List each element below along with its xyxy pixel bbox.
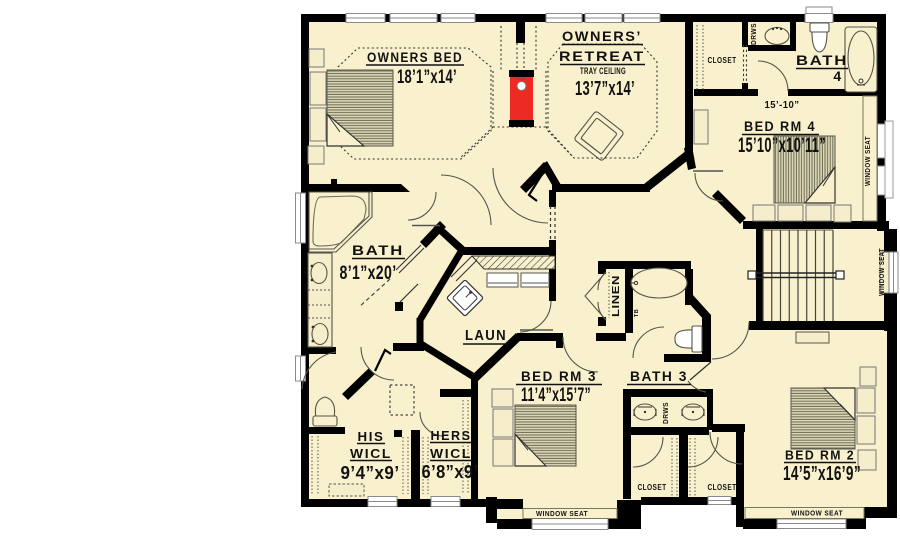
svg-text:WINDOW SEAT: WINDOW SEAT (865, 136, 872, 186)
svg-text:BATH: BATH (796, 52, 848, 68)
svg-text:DRWS: DRWS (751, 23, 758, 45)
svg-text:6’8”x9’: 6’8”x9’ (422, 461, 479, 482)
svg-text:14’5”x16’9”: 14’5”x16’9” (783, 463, 861, 485)
svg-text:HERS: HERS (431, 429, 472, 443)
svg-text:LINEN: LINEN (610, 275, 622, 317)
svg-text:15’10”x10’11”: 15’10”x10’11” (738, 134, 826, 157)
svg-text:9’4”x9’: 9’4”x9’ (341, 462, 400, 483)
svg-text:13’7”x14’: 13’7”x14’ (575, 78, 635, 100)
svg-text:CLOSET: CLOSET (708, 483, 737, 492)
svg-text:11’4”x15’7”: 11’4”x15’7” (521, 385, 591, 406)
svg-text:WINDOW SEAT: WINDOW SEAT (791, 509, 843, 518)
svg-text:OWNERS’: OWNERS’ (562, 28, 642, 44)
svg-text:BATH: BATH (352, 242, 404, 258)
svg-text:8’1”x20’: 8’1”x20’ (340, 262, 397, 284)
svg-text:BED RM 4: BED RM 4 (744, 119, 816, 134)
svg-text:18’1”x14’: 18’1”x14’ (397, 66, 457, 88)
svg-text:HIS: HIS (358, 430, 385, 444)
svg-text:BATH 3: BATH 3 (630, 369, 688, 384)
svg-text:LAUN: LAUN (465, 328, 507, 344)
svg-text:OWNERS BED: OWNERS BED (367, 50, 463, 65)
svg-text:WINDOW SEAT: WINDOW SEAT (536, 509, 588, 518)
svg-text:BED RM 3: BED RM 3 (521, 369, 597, 384)
svg-text:WICL: WICL (350, 447, 392, 461)
svg-text:DRWS: DRWS (663, 402, 670, 424)
svg-text:CLOSET: CLOSET (638, 483, 667, 492)
svg-text:TRAY CEILING: TRAY CEILING (580, 66, 626, 76)
svg-text:CLOSET: CLOSET (708, 56, 737, 65)
svg-text:15’-10”: 15’-10” (765, 100, 800, 111)
svg-text:WICL: WICL (430, 447, 472, 461)
svg-text:WINDOW SEAT: WINDOW SEAT (879, 248, 886, 296)
svg-text:4: 4 (833, 68, 842, 84)
svg-text:TB: TB (634, 309, 640, 317)
svg-text:RETREAT: RETREAT (559, 48, 645, 64)
svg-text:BED RM 2: BED RM 2 (785, 448, 855, 463)
